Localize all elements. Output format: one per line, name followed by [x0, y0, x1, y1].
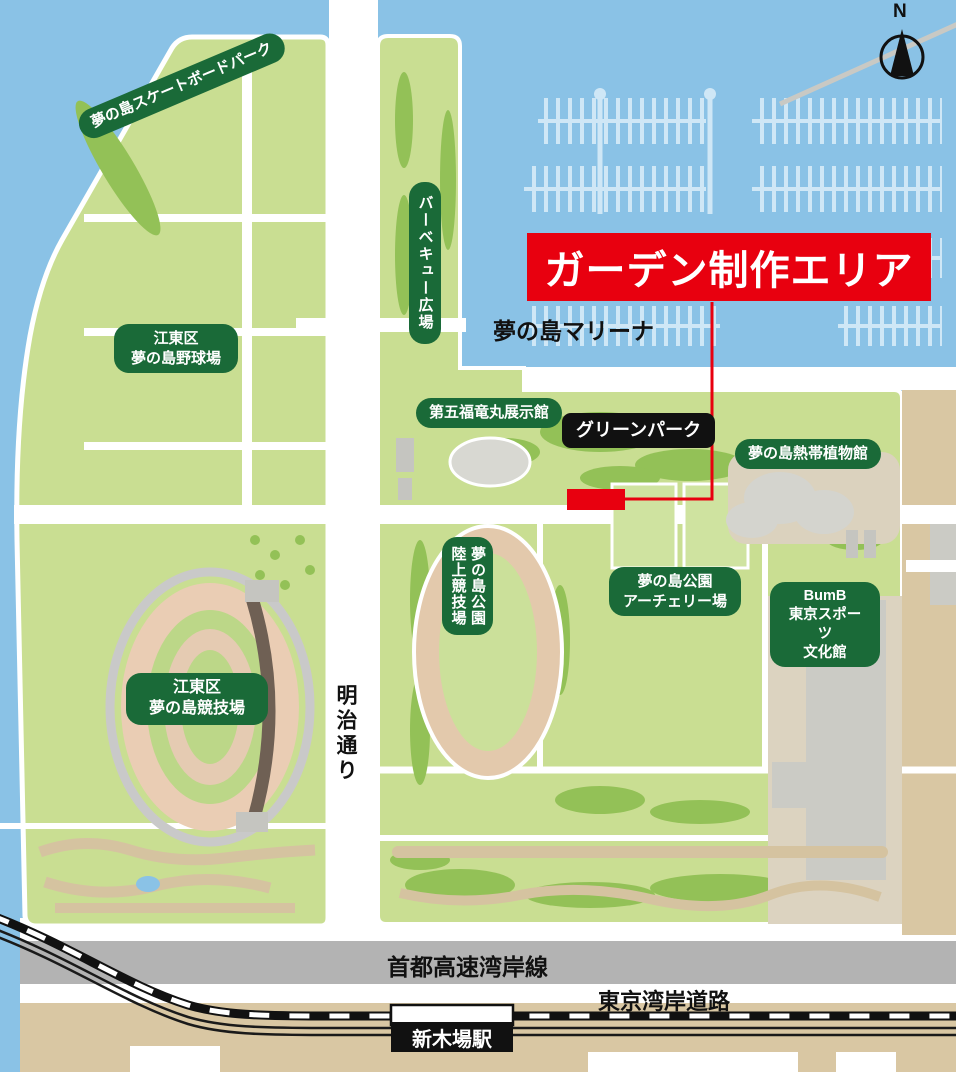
map-artwork: [0, 0, 956, 1072]
green-park-label: グリーンパーク: [562, 413, 715, 448]
bbq-plaza-label: バーベキュー広場: [409, 182, 441, 344]
baseball-field-label: 江東区 夢の島野球場: [114, 324, 238, 373]
map-canvas: 夢の島スケートボードパーク 江東区 夢の島野球場 バーベキュー広場 ガーデン制作…: [0, 0, 956, 1072]
north-label: N: [893, 1, 907, 23]
east-road: [906, 560, 956, 572]
meiji-dori-label: 明治通り: [330, 684, 360, 784]
wangan-road-label: 東京湾岸道路: [598, 984, 730, 1016]
left-water-strip: [0, 828, 20, 1072]
athletics-field-label: 夢の島公園 陸上競技場: [442, 537, 493, 635]
station-badge: 新木場駅: [391, 1022, 513, 1052]
tropical-dome-label: 夢の島熱帯植物館: [735, 439, 881, 469]
expressway-label: 首都高速湾岸線: [387, 948, 548, 982]
marina-label: 夢の島マリーナ: [493, 312, 654, 346]
archery-field-label: 夢の島公園 アーチェリー場: [609, 567, 741, 616]
garden-area-banner: ガーデン制作エリア: [527, 233, 931, 301]
bumb-label: BumB 東京スポーツ 文化館: [770, 582, 880, 667]
daigo-museum-label: 第五福竜丸展示館: [416, 398, 562, 428]
cross-road: [296, 318, 466, 332]
marina-quay: [524, 367, 956, 390]
east-ground-strip: [902, 390, 956, 935]
meiji-dori-road: [329, 0, 378, 925]
stadium-label: 江東区 夢の島競技場: [126, 673, 268, 725]
